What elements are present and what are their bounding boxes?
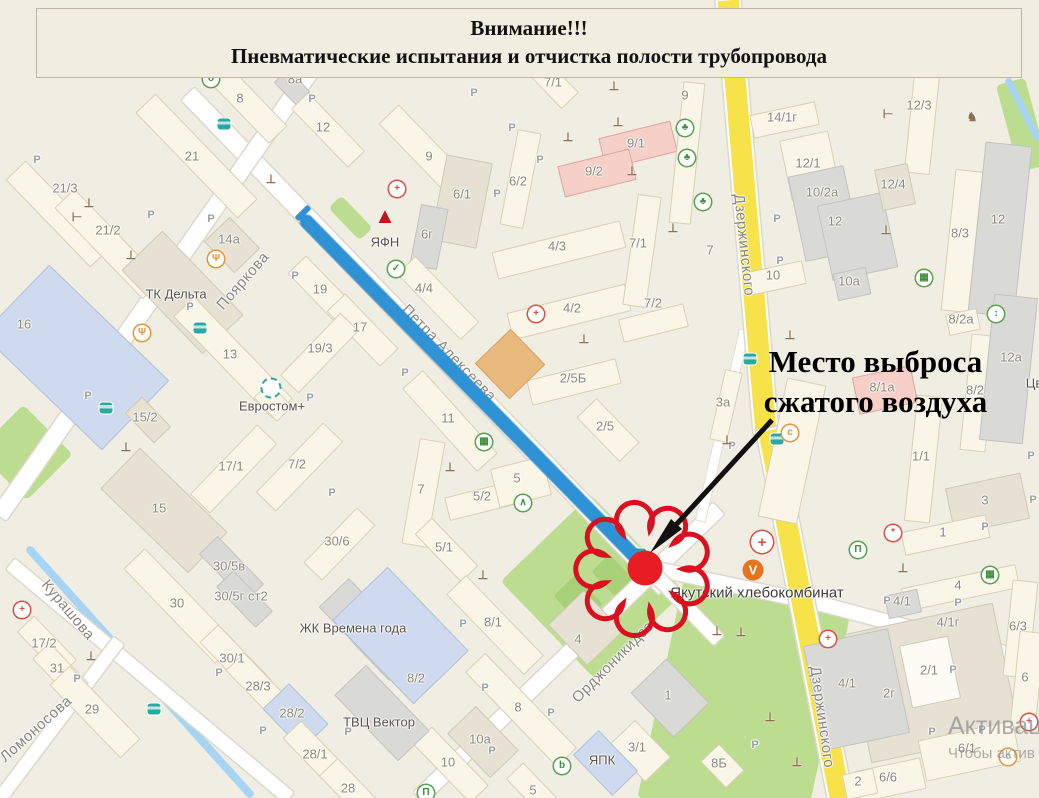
building-label: 15/2 [132, 410, 157, 425]
building [622, 194, 661, 308]
building-label: 8/2 [407, 671, 425, 686]
building-label: 17/2 [31, 636, 56, 651]
dumbbell-icon: ⊢ [883, 107, 893, 121]
parking-label: P [33, 154, 40, 166]
playground-icon: ⊥ [668, 221, 678, 235]
building-label: 8/2а [948, 312, 973, 327]
playground-icon: ⊥ [765, 710, 775, 724]
parking-label: P [949, 664, 956, 676]
building-label: 12 [828, 214, 842, 229]
eurostom-logo-icon [261, 378, 282, 399]
parking-label: P [459, 618, 466, 630]
parking-label: P [207, 213, 214, 225]
bell-icon: ♣ [679, 150, 695, 166]
building-label: 12/4 [880, 177, 905, 192]
building-label: 1/1 [912, 449, 930, 464]
building-label: 4/1 [838, 676, 856, 691]
watermark-line1: Активация [948, 712, 1039, 741]
building-label: 9/1 [627, 136, 645, 151]
building-label: 10 [441, 755, 455, 770]
banner-title: Внимание!!! [37, 16, 1021, 41]
parking-label: P [493, 188, 500, 200]
flower-shop-icon: * [885, 525, 901, 541]
building-label: 28 [341, 781, 355, 796]
callout-line2: сжатого воздуха [733, 382, 1018, 422]
building-label: 2/5 [596, 419, 614, 434]
parking-label: P [73, 673, 80, 685]
bottle-icon: b [554, 758, 570, 774]
building-label: 10/2а [806, 185, 839, 200]
yafn-logo-icon: ▲ [374, 203, 396, 229]
parking-label: P [259, 725, 266, 737]
building-label: 4 [574, 632, 581, 647]
building-label: 7/1 [629, 236, 647, 251]
building-label: 8Б [711, 756, 727, 771]
playground-icon: ⊥ [478, 568, 488, 582]
building-label: 3а [716, 395, 730, 410]
playground-icon: ⊥ [84, 196, 94, 210]
building-label: 8/1 [484, 615, 502, 630]
building-label: 6/3 [1009, 619, 1027, 634]
building-label: 31 [50, 661, 64, 676]
building-label: 12 [991, 212, 1005, 227]
building-label: 9/2 [585, 164, 603, 179]
parking-label: P [1029, 494, 1036, 506]
playground-icon: ⊥ [579, 332, 589, 346]
building-label: 5 [529, 783, 536, 798]
bell-icon: ♣ [677, 120, 693, 136]
parking-label: P [147, 209, 154, 221]
building-label: 8/3 [951, 226, 969, 241]
restaurant-icon: Ψ [134, 325, 150, 341]
building-label: 4/1 [893, 594, 911, 609]
poi-label: ЯФН [371, 235, 400, 250]
poi-label: ТВЦ Вектор [343, 715, 415, 730]
bell-icon: ♣ [695, 194, 711, 210]
playground-icon: ⊥ [722, 433, 732, 447]
playground-icon: ⊥ [609, 79, 619, 93]
pharmacy-icon: + [389, 181, 405, 197]
building-label: 7 [706, 243, 713, 258]
parking-label: P [186, 301, 193, 313]
building-label: 4/1г [937, 615, 960, 630]
playground-icon: ⊥ [736, 625, 746, 639]
building-label: 30/5г ст2 [214, 589, 267, 604]
poi-label: ТК Дельта [145, 287, 206, 302]
parking-label: P [308, 93, 315, 105]
building-label: 28/3 [245, 679, 270, 694]
blast-callout: Место выброса сжатого воздуха [733, 342, 1018, 422]
building-label: 30/6 [324, 534, 349, 549]
building-label: 19/3 [307, 341, 332, 356]
pharmacy-icon: + [528, 306, 544, 322]
building [904, 71, 941, 175]
parking-label: P [488, 745, 495, 757]
parking-label: P [928, 726, 935, 738]
building-label: 10 [766, 268, 780, 283]
playground-icon: ⊥ [792, 755, 802, 769]
building-label: 14/1г [767, 110, 797, 125]
parking-label: P [470, 87, 477, 99]
bus-stop-icon [100, 403, 113, 414]
building-label: 6г [421, 227, 433, 242]
map-canvas[interactable]: ПоярковаПетра АлексееваОрджоникидзеДзерж… [0, 0, 1039, 798]
building-label: 6/6 [879, 770, 897, 785]
poi-label: Евростом+ [239, 399, 305, 414]
pharmacy-icon: + [14, 602, 30, 618]
building-label: 28/2 [279, 706, 304, 721]
parking-label: P [773, 213, 780, 225]
building-label: 7 [417, 482, 424, 497]
building-label: 6 [1021, 670, 1028, 685]
building-label: 28/1 [302, 747, 327, 762]
building-label: 30/1 [219, 651, 244, 666]
callout-line1: Место выброса [733, 342, 1018, 382]
building-label: 5/2 [473, 489, 491, 504]
playground-icon: ⊥ [266, 172, 276, 186]
building-label: 1 [664, 688, 671, 703]
education-icon: ∧ [515, 495, 531, 511]
parking-label: P [328, 487, 335, 499]
parking-label: P [536, 154, 543, 166]
bakery-logo-icon: V [743, 560, 764, 581]
building-label: 14а [218, 232, 240, 247]
parking-label: P [306, 392, 313, 404]
bus-stop-icon [148, 704, 161, 715]
building-label: 2г [883, 686, 895, 701]
parking-label: P [401, 367, 408, 379]
parking-label: P [547, 707, 554, 719]
playground-icon: ⊥ [445, 460, 455, 474]
building-label: 4/3 [548, 239, 566, 254]
museum-icon: Π [418, 785, 434, 798]
playground-icon: ⊥ [898, 561, 908, 575]
building-label: 12/3 [906, 98, 931, 113]
playground-icon: ⊥ [881, 223, 891, 237]
building-label: 5/1 [435, 540, 453, 555]
coffee-icon: c [782, 425, 798, 441]
cart-icon: ▦ [476, 434, 492, 450]
dog-park-icon: ♞ [967, 110, 978, 124]
activation-watermark: Активация Чтобы актив [948, 712, 1039, 762]
building-label: 21 [185, 149, 199, 164]
parking-label: P [84, 390, 91, 402]
building-label: 12/1 [795, 156, 820, 171]
parking-label: P [776, 255, 783, 267]
building [968, 141, 1033, 317]
building-label: 30 [170, 596, 184, 611]
poi-label: Якутский хлебокомбинат [670, 585, 843, 602]
building-label: 17/1 [218, 459, 243, 474]
building-label: 1 [939, 525, 946, 540]
parking-label: P [883, 595, 890, 607]
poi-label: ЯПК [589, 753, 615, 768]
parking-label: P [751, 739, 758, 751]
playground-icon: ⊥ [785, 328, 795, 342]
parking-label: P [1027, 450, 1034, 462]
dumbbell-icon: ⊢ [72, 210, 82, 224]
building-label: 16 [17, 317, 31, 332]
building-label: 7/2 [644, 296, 662, 311]
poi-label: Цв [1026, 376, 1039, 391]
playground-icon: ⊥ [126, 248, 136, 262]
playground-icon: ⊥ [712, 624, 722, 638]
bus-stop-icon [218, 119, 231, 130]
warning-banner: Внимание!!! Пневматические испытания и о… [36, 8, 1022, 78]
building-label: 4/2 [563, 301, 581, 316]
building-label: 7/2 [288, 457, 306, 472]
playground-icon: ⊥ [563, 130, 573, 144]
playground-icon: ⊥ [121, 440, 131, 454]
parking-label: P [954, 597, 961, 609]
building-label: 6/1 [453, 187, 471, 202]
poi-label: ЖК Времена года [300, 621, 407, 636]
building-label: 21/2 [95, 223, 120, 238]
building-label: 8 [514, 700, 521, 715]
building-label: 15 [152, 501, 166, 516]
building-label: 4 [954, 578, 961, 593]
building-label: 17 [353, 320, 367, 335]
parking-label: P [508, 122, 515, 134]
building-label: 2/5Б [560, 371, 587, 386]
playground-icon: ⊥ [86, 649, 96, 663]
building-label: 21/3 [52, 181, 77, 196]
cart-icon: ▦ [982, 567, 998, 583]
building-label: 30/5в [213, 559, 245, 574]
parking-label: P [291, 270, 298, 282]
playground-icon: ⊥ [627, 164, 637, 178]
cart-icon: ▦ [916, 270, 932, 286]
building-label: 12 [316, 120, 330, 135]
thermometer-icon: ↕ [988, 306, 1004, 322]
shoe-shop-icon: ✓ [388, 261, 404, 277]
pharmacy-icon: + [820, 631, 836, 647]
restaurant-icon: Ψ [208, 251, 224, 267]
banner-subtitle: Пневматические испытания и отчистка поло… [37, 44, 1021, 69]
building-label: 9 [681, 88, 688, 103]
parking-label: P [215, 667, 222, 679]
watermark-line2: Чтобы актив [948, 745, 1039, 762]
parking-label: P [981, 521, 988, 533]
building-label: 29 [85, 702, 99, 717]
building-label: 10а [838, 274, 860, 289]
medical-cross-icon: + [751, 531, 773, 553]
building-label: 13 [223, 347, 237, 362]
playground-icon: ⊥ [613, 115, 623, 129]
museum-icon: Π [850, 542, 866, 558]
building-label: 19 [313, 282, 327, 297]
parking-label: P [481, 682, 488, 694]
building-label: 2 [854, 774, 861, 789]
building-label: 3 [981, 493, 988, 508]
bus-stop-icon [194, 323, 207, 334]
building-label: 4/4 [415, 281, 433, 296]
building-label: 8 [236, 91, 243, 106]
building-label: 6/2 [509, 174, 527, 189]
building-label: 11 [441, 411, 455, 426]
building-label: 3/1 [628, 740, 646, 755]
building-label: 5 [513, 471, 520, 486]
building-label: 2/1 [920, 663, 938, 678]
building-label: 9 [425, 149, 432, 164]
